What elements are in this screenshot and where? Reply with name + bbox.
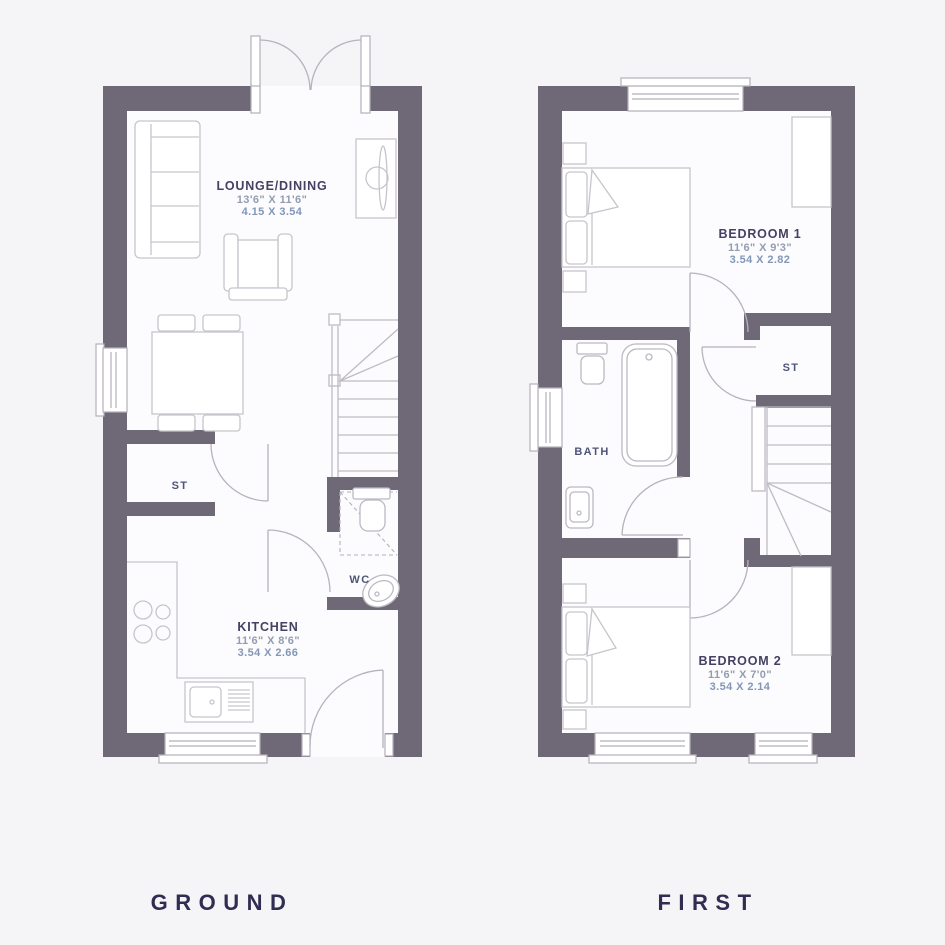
bedroom2-label: BEDROOM 2 <box>699 654 782 668</box>
kitchen-label: KITCHEN <box>237 620 298 634</box>
radiator <box>356 139 396 218</box>
wc-wall-left <box>327 490 340 532</box>
first-store-wall-bottom <box>756 395 831 408</box>
bedside-table <box>563 710 586 729</box>
lounge-dim-imperial: 13'6" X 11'6" <box>237 194 307 206</box>
first-floor-title: FIRST <box>657 890 758 915</box>
ground-window-left <box>96 344 127 416</box>
pillow <box>566 172 587 217</box>
kitchen-dim-metric: 3.54 X 2.66 <box>238 647 299 659</box>
bedroom1-dim-imperial: 11'6" X 9'3" <box>728 242 792 254</box>
dining-table <box>152 332 243 414</box>
ground-window-bottom <box>159 733 267 763</box>
pillow <box>566 612 587 655</box>
toilet-bowl <box>581 356 604 384</box>
bedroom2-dim-metric: 3.54 X 2.14 <box>710 681 771 693</box>
store-wall-top <box>127 430 215 444</box>
dining-chair <box>203 415 240 431</box>
ground-floor-title: GROUND <box>151 890 294 915</box>
french-door-leaf-left <box>251 36 260 86</box>
pillow <box>566 221 587 264</box>
pillow <box>566 659 587 703</box>
bath-wall-right <box>677 327 690 477</box>
bedside-table <box>563 584 586 603</box>
armchair <box>224 234 292 300</box>
stairs-wall-bottom <box>756 555 831 567</box>
landing-window <box>749 733 817 763</box>
toilet-bowl <box>360 500 385 531</box>
bedroom2-bed <box>562 607 690 707</box>
wc-label: WC <box>349 574 370 586</box>
lounge-dim-metric: 4.15 X 3.54 <box>242 206 303 218</box>
floorplan-page: LOUNGE/DINING 13'6" X 11'6" 4.15 X 3.54 … <box>0 0 945 945</box>
toilet-cistern <box>577 343 607 354</box>
bathtub <box>622 344 677 466</box>
ground-store-label: ST <box>172 480 189 492</box>
bedroom1-bed <box>562 168 690 267</box>
first-store-label: ST <box>783 362 800 374</box>
sofa <box>135 121 200 258</box>
dining-chair <box>158 415 195 431</box>
bedroom1-bath-wall <box>562 327 690 340</box>
bedside-table <box>563 143 586 164</box>
toilet-cistern <box>353 488 390 499</box>
french-door-leaf-right <box>361 36 370 86</box>
store-wall-bottom <box>127 502 215 516</box>
bedroom2-wardrobe <box>792 567 831 655</box>
bath-label: BATH <box>574 446 609 458</box>
dining-set <box>152 315 243 431</box>
ground-floor-plan: LOUNGE/DINING 13'6" X 11'6" 4.15 X 3.54 … <box>96 36 422 763</box>
bedroom1-wardrobe <box>792 117 831 207</box>
dining-chair <box>203 315 240 331</box>
bath-bedroom2-wall <box>562 538 690 558</box>
bedroom2-dim-imperial: 11'6" X 7'0" <box>708 669 772 681</box>
sink <box>185 682 253 722</box>
first-store-wall-top <box>756 313 831 326</box>
first-floor-plan: BEDROOM 1 11'6" X 9'3" 3.54 X 2.82 BEDRO… <box>530 78 855 763</box>
kitchen-dim-imperial: 11'6" X 8'6" <box>236 635 300 647</box>
floorplan-canvas: LOUNGE/DINING 13'6" X 11'6" 4.15 X 3.54 … <box>0 0 945 945</box>
lounge-label: LOUNGE/DINING <box>216 179 327 193</box>
dining-chair <box>158 315 195 331</box>
bath-window <box>530 384 562 451</box>
bedside-table <box>563 271 586 292</box>
bedroom2-window <box>589 733 696 763</box>
bedroom1-label: BEDROOM 1 <box>719 227 802 241</box>
bedroom1-dim-metric: 3.54 X 2.82 <box>730 254 791 266</box>
first-window-top <box>621 78 750 111</box>
